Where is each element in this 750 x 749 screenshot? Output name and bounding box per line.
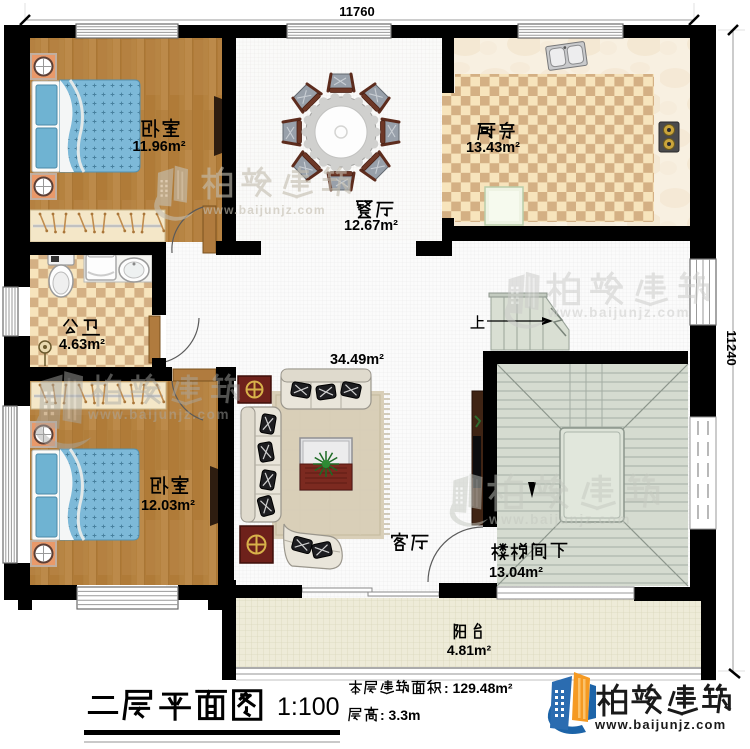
svg-text:11.96m²: 11.96m² (132, 139, 185, 155)
svg-text:www.baijunjz.com: www.baijunjz.com (202, 203, 326, 217)
svg-text:: 3.3m: : 3.3m (380, 707, 420, 723)
svg-text:11760: 11760 (339, 4, 374, 19)
svg-text:13.04m²: 13.04m² (489, 565, 543, 581)
svg-text:11240: 11240 (724, 330, 739, 365)
svg-text:www.baijunjz.com: www.baijunjz.com (87, 407, 230, 422)
svg-text:34.49m²: 34.49m² (330, 352, 384, 368)
svg-text:1:100: 1:100 (277, 693, 340, 721)
svg-text:12.67m²: 12.67m² (344, 218, 398, 234)
svg-text:4.81m²: 4.81m² (447, 642, 492, 658)
svg-text:13.43m²: 13.43m² (466, 140, 520, 156)
svg-text:www.baijunjz.com: www.baijunjz.com (488, 512, 631, 527)
svg-text:www.baijunjz.com: www.baijunjz.com (594, 717, 726, 732)
svg-text:4.63m²: 4.63m² (59, 337, 105, 353)
svg-text:12.03m²: 12.03m² (141, 498, 195, 514)
svg-text:: 129.48m²: : 129.48m² (444, 680, 513, 696)
svg-text:www.baijunjz.com: www.baijunjz.com (547, 305, 690, 320)
